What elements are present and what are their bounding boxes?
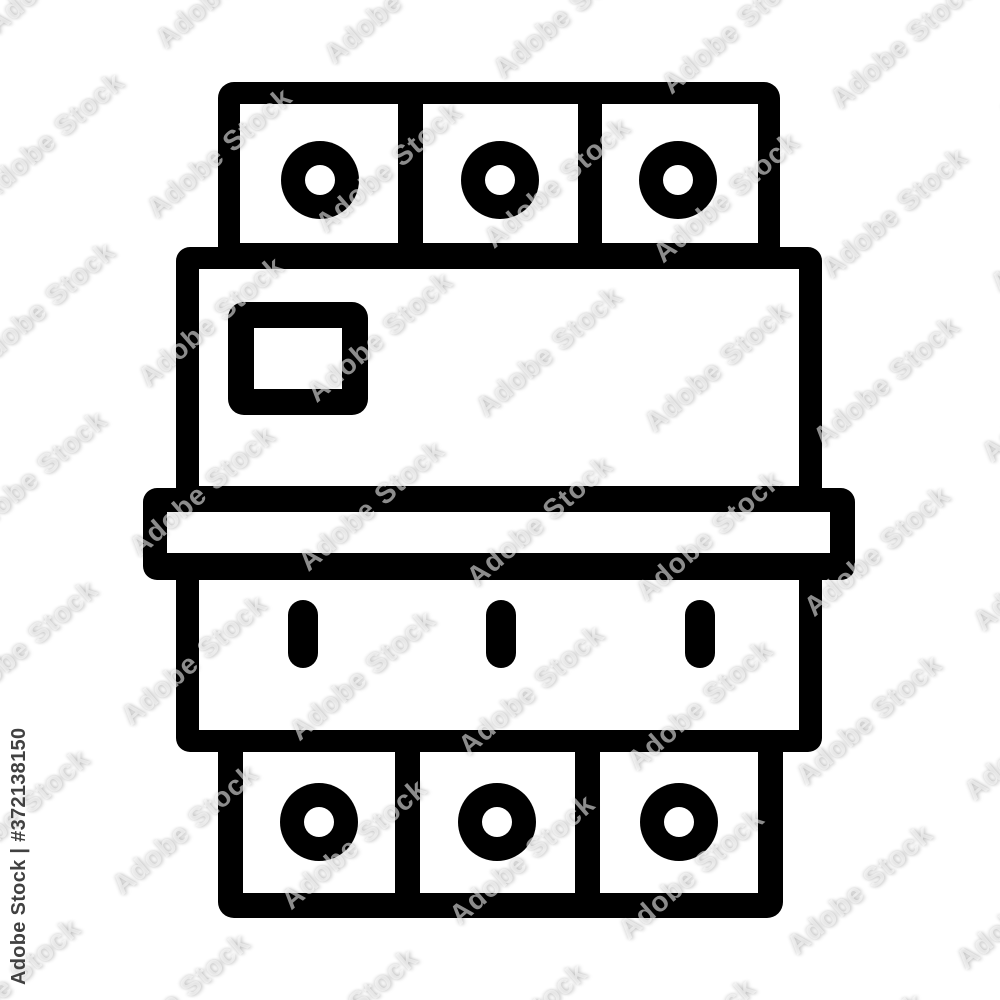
watermark-tile: Adobe Stock (0, 574, 104, 718)
screw-hole-icon (663, 165, 693, 195)
screw-hole-icon (482, 807, 512, 837)
bottom-terminal-screw-2 (458, 783, 536, 861)
bottom-terminal-screw-1 (280, 783, 358, 861)
breaker-lower-body (176, 556, 822, 752)
watermark-tile: Adobe Stock (975, 325, 1000, 469)
top-terminal-divider-1 (398, 104, 423, 243)
breaker-top-terminal-row (218, 82, 780, 265)
watermark-tile: Adobe Stock (958, 663, 1000, 807)
watermark-tile: Adobe Stock (318, 0, 476, 71)
top-terminal-screw-1 (281, 141, 359, 219)
watermark-tile: Adobe Stock (993, 0, 1000, 130)
watermark-tile: Adobe Stock (950, 832, 1000, 976)
bottom-terminal-divider-1 (395, 752, 420, 893)
top-terminal-divider-2 (578, 104, 602, 243)
watermark-tile: Adobe Stock (149, 0, 307, 55)
watermark-tile: Adobe Stock (0, 235, 121, 379)
top-terminal-screw-3 (639, 141, 717, 219)
watermark-tile: Adobe Stock (984, 156, 1000, 300)
watermark-tile: Adobe Stock (815, 141, 973, 285)
watermark-tile: Adobe Stock (435, 956, 593, 1000)
vent-slot-2 (486, 600, 516, 668)
stock-image-preview: Adobe StockAdobe StockAdobe StockAdobe S… (0, 0, 1000, 1000)
bottom-terminal-screw-3 (640, 783, 718, 861)
watermark-tile: Adobe Stock (97, 927, 255, 1000)
breaker-bottom-terminal-row (218, 730, 783, 918)
watermark-tile: Adobe Stock (824, 0, 982, 115)
watermark-tile: Adobe Stock (772, 986, 930, 1000)
vent-slot-3 (685, 600, 715, 668)
watermark-tile: Adobe Stock (603, 972, 761, 1000)
watermark-tile: Adobe Stock (0, 0, 139, 41)
screw-hole-icon (304, 807, 334, 837)
watermark-tile: Adobe Stock (0, 66, 130, 210)
watermark-tile: Adobe Stock (781, 818, 939, 962)
breaker-main-body (176, 247, 822, 512)
watermark-tile: Adobe Stock (0, 404, 113, 548)
bottom-terminal-divider-2 (575, 752, 600, 893)
stock-id-label: Adobe Stock | #372138150 (8, 728, 31, 985)
watermark-tile: Adobe Stock (487, 0, 645, 85)
screw-hole-icon (305, 165, 335, 195)
breaker-label-window (228, 302, 368, 415)
top-terminal-screw-2 (461, 141, 539, 219)
screw-hole-icon (485, 165, 515, 195)
watermark-tile: Adobe Stock (967, 494, 1000, 638)
vent-slot-1 (288, 600, 318, 668)
screw-hole-icon (664, 807, 694, 837)
watermark-tile: Adobe Stock (266, 942, 424, 1000)
watermark-tile: Adobe Stock (807, 310, 965, 454)
